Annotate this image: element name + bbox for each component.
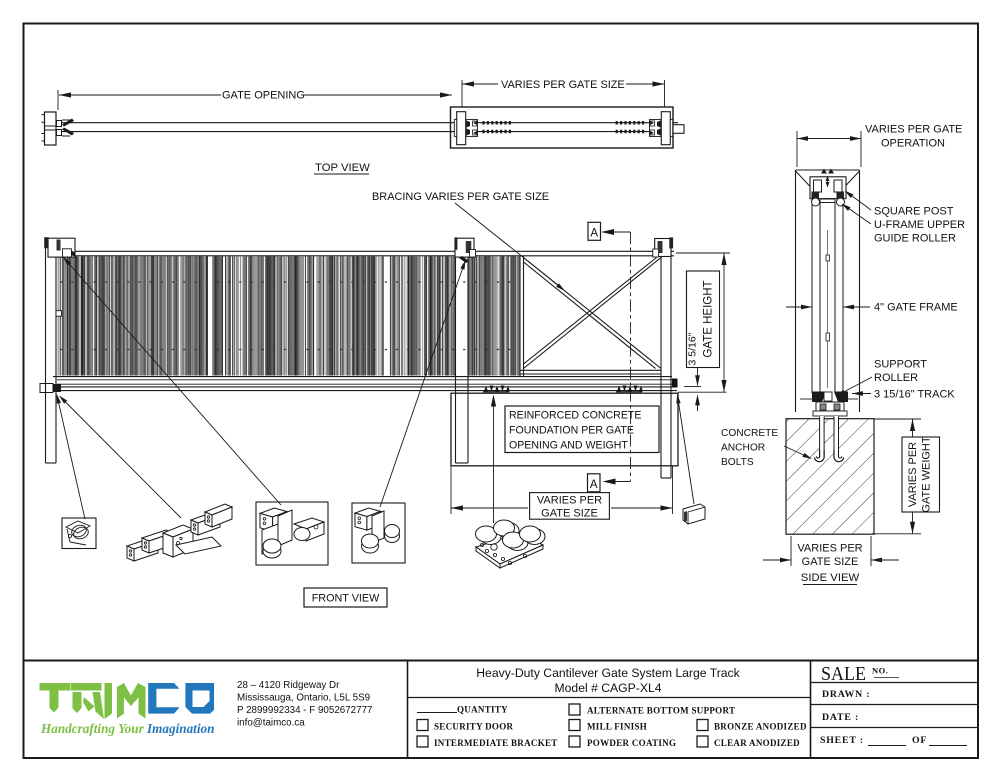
svg-text:3 5/16": 3 5/16" [687, 332, 699, 365]
svg-text:SIDE VIEW: SIDE VIEW [801, 572, 860, 584]
svg-text:GATE SIZE: GATE SIZE [541, 508, 598, 520]
svg-text:FOUNDATION PER GATE: FOUNDATION PER GATE [509, 425, 634, 437]
svg-text:VARIES PER: VARIES PER [797, 543, 862, 555]
svg-text:3 15/16" TRACK: 3 15/16" TRACK [874, 389, 955, 401]
svg-text:NO.: NO. [872, 666, 888, 676]
svg-text:Heavy-Duty Cantilever Gate Sys: Heavy-Duty Cantilever Gate System Large … [476, 666, 740, 680]
svg-text:DATE :: DATE : [822, 712, 859, 723]
svg-text:REINFORCED CONCRETE: REINFORCED CONCRETE [509, 410, 641, 422]
svg-text:POWDER COATING: POWDER COATING [587, 738, 676, 748]
svg-text:VARIES PER: VARIES PER [907, 442, 919, 507]
svg-text:SUPPORT: SUPPORT [874, 359, 927, 371]
svg-text:28 – 4120 Ridgeway Dr: 28 – 4120 Ridgeway Dr [237, 680, 340, 691]
svg-text:FRONT VIEW: FRONT VIEW [312, 593, 380, 605]
svg-text:QUANTITY: QUANTITY [457, 705, 508, 715]
svg-text:VARIES PER GATE: VARIES PER GATE [865, 124, 962, 136]
svg-text:Handcrafting Your Imagination: Handcrafting Your Imagination [40, 721, 214, 736]
svg-text:VARIES PER GATE SIZE: VARIES PER GATE SIZE [501, 79, 625, 91]
svg-text:GUIDE ROLLER: GUIDE ROLLER [874, 233, 956, 245]
svg-text:OF: OF [912, 735, 927, 746]
svg-text:GATE OPENING: GATE OPENING [222, 90, 305, 102]
svg-text:BRONZE ANODIZED: BRONZE ANODIZED [714, 722, 807, 732]
svg-text:SQUARE POST: SQUARE POST [874, 206, 954, 218]
svg-text:INTERMEDIATE BRACKET: INTERMEDIATE BRACKET [434, 738, 558, 748]
svg-text:info@taimco.ca: info@taimco.ca [237, 718, 305, 729]
svg-text:4" GATE FRAME: 4" GATE FRAME [874, 302, 958, 314]
svg-text:TOP VIEW: TOP VIEW [315, 162, 370, 174]
svg-text:U-FRAME UPPER: U-FRAME UPPER [874, 219, 965, 231]
svg-text:CLEAR ANODIZED: CLEAR ANODIZED [714, 738, 800, 748]
svg-text:BOLTS: BOLTS [721, 457, 754, 468]
svg-text:SECURITY DOOR: SECURITY DOOR [434, 722, 514, 732]
svg-text:DRAWN :: DRAWN : [822, 689, 870, 700]
svg-text:SHEET :: SHEET : [820, 735, 864, 746]
svg-text:CONCRETE: CONCRETE [721, 428, 778, 439]
svg-text:ANCHOR: ANCHOR [721, 443, 765, 454]
svg-text:GATE WEIGHT: GATE WEIGHT [921, 436, 933, 512]
svg-text:A: A [590, 228, 598, 240]
svg-text:SALE: SALE [821, 663, 866, 685]
svg-text:MILL FINISH: MILL FINISH [587, 722, 647, 732]
svg-text:Mississauga, Ontario, L5L 5S9: Mississauga, Ontario, L5L 5S9 [237, 693, 370, 704]
svg-text:P 2899992334 - F 9052672777: P 2899992334 - F 9052672777 [237, 705, 372, 716]
svg-text:ALTERNATE BOTTOM SUPPORT: ALTERNATE BOTTOM SUPPORT [587, 706, 735, 716]
svg-text:ROLLER: ROLLER [874, 372, 918, 384]
svg-text:GATE SIZE: GATE SIZE [802, 556, 859, 568]
svg-text:VARIES PER: VARIES PER [537, 495, 602, 507]
svg-text:BRACING VARIES PER GATE SIZE: BRACING VARIES PER GATE SIZE [372, 191, 549, 203]
svg-text:Model # CAGP-XL4: Model # CAGP-XL4 [554, 681, 661, 695]
svg-text:OPERATION: OPERATION [881, 138, 945, 150]
svg-text:GATE HEIGHT: GATE HEIGHT [703, 280, 715, 357]
svg-text:A: A [590, 479, 598, 491]
svg-text:OPENING AND WEIGHT: OPENING AND WEIGHT [509, 440, 628, 452]
